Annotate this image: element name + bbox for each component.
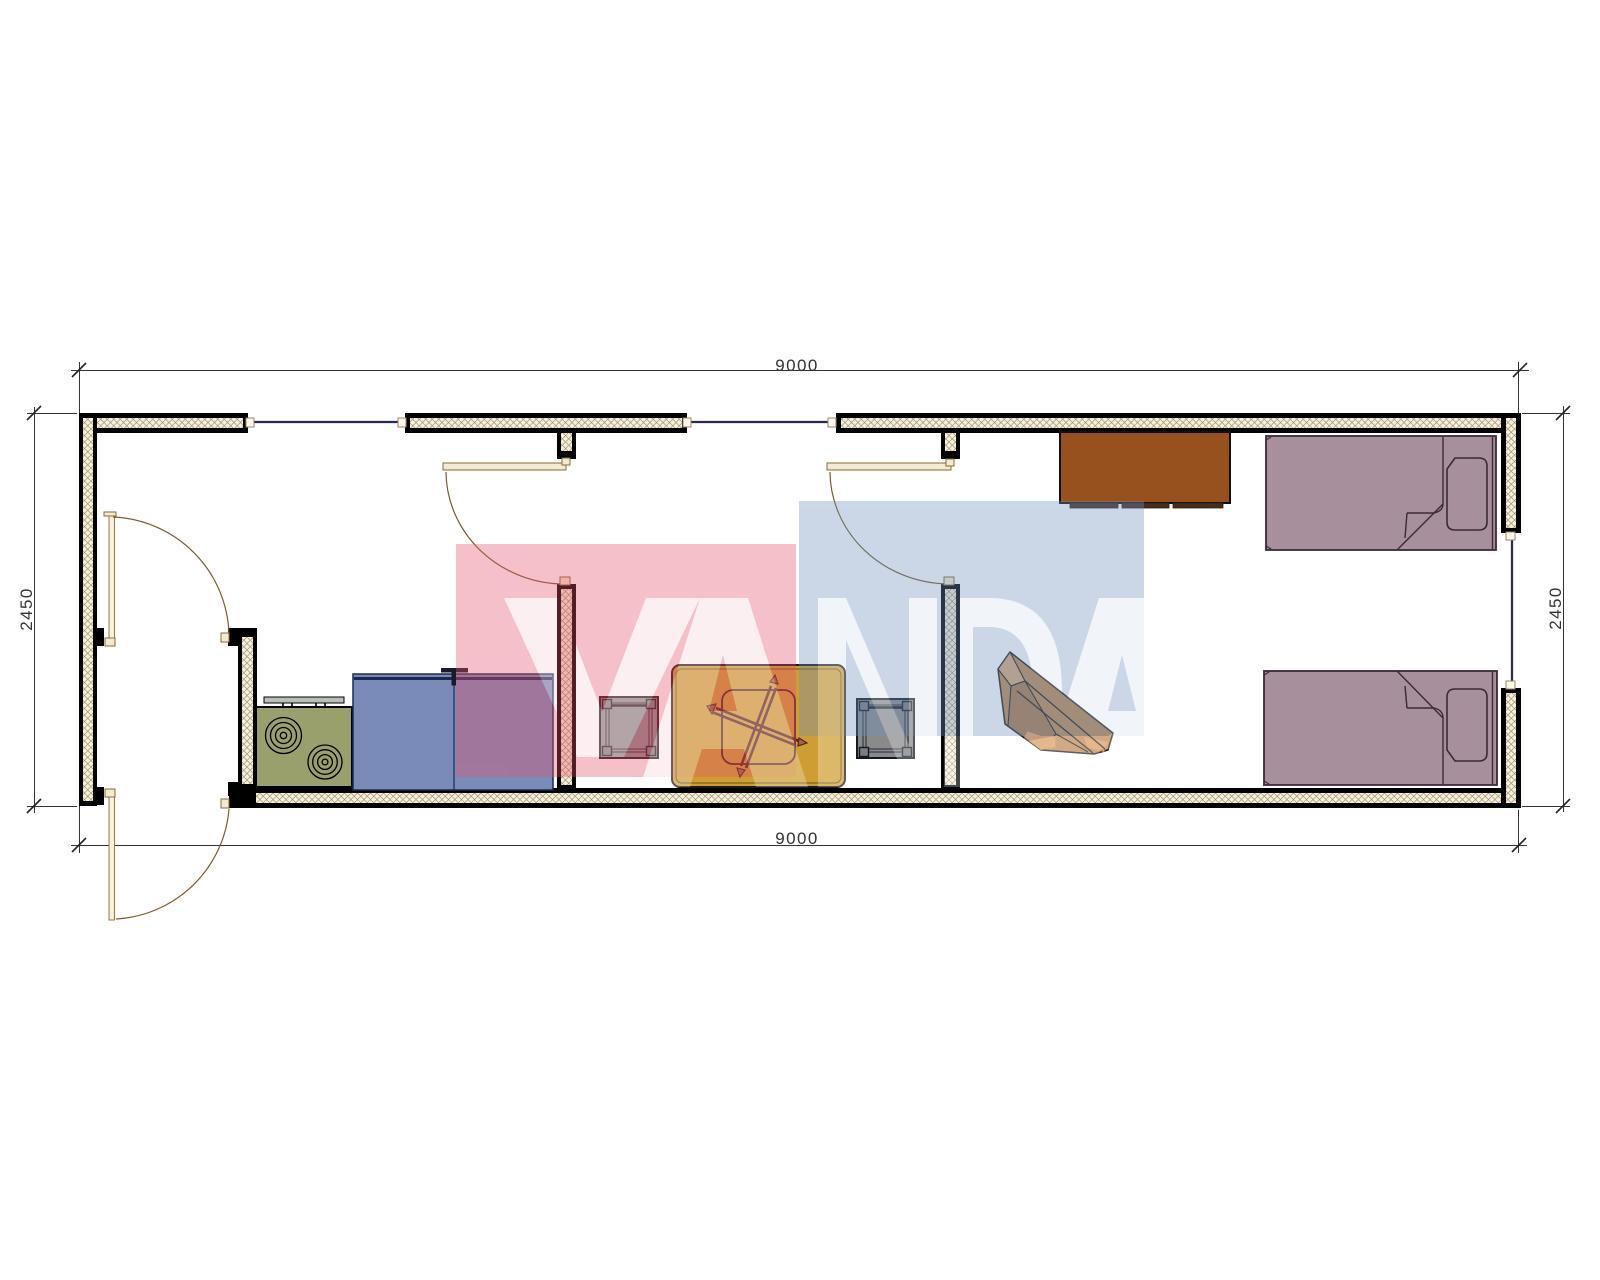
svg-text:2450: 2450 xyxy=(1546,586,1565,629)
svg-text:9000: 9000 xyxy=(775,356,818,375)
svg-text:9000: 9000 xyxy=(775,829,818,848)
svg-text:2450: 2450 xyxy=(17,587,36,630)
